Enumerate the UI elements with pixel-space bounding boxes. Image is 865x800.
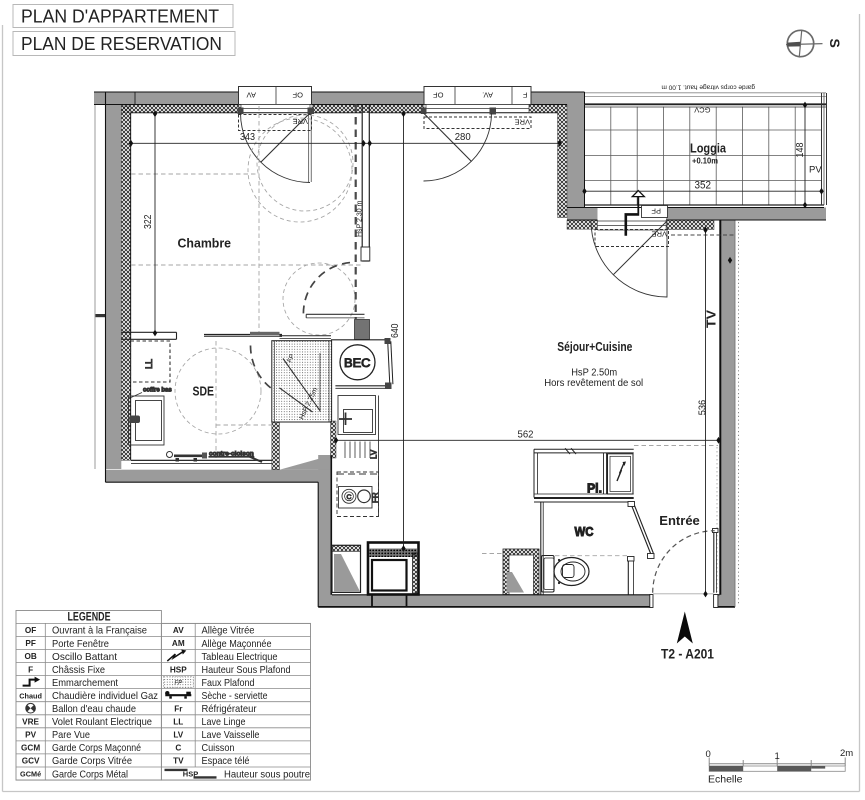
svg-text:Réfrigérateur: Réfrigérateur: [202, 704, 258, 715]
svg-text:Porte Fenêtre: Porte Fenêtre: [52, 639, 109, 650]
svg-text:AV.: AV.: [482, 91, 493, 100]
svg-text:Séjour+Cuisine: Séjour+Cuisine: [557, 339, 632, 354]
svg-text:VRE: VRE: [515, 118, 530, 127]
svg-text:coffre bas: coffre bas: [143, 388, 172, 394]
svg-text:Allège Vitrée: Allège Vitrée: [202, 626, 255, 637]
svg-text:Espace télé: Espace télé: [202, 756, 250, 767]
svg-text:Fr: Fr: [174, 704, 183, 713]
svg-text:562: 562: [518, 429, 534, 441]
svg-text:S: S: [827, 39, 843, 48]
svg-text:322: 322: [142, 214, 154, 229]
svg-text:LL: LL: [144, 359, 154, 369]
svg-text:148: 148: [794, 142, 806, 157]
svg-text:Entrée: Entrée: [659, 513, 700, 528]
svg-text:GCM: GCM: [21, 744, 40, 753]
svg-text:HsP 2.50m: HsP 2.50m: [571, 367, 617, 378]
svg-text:GCMé: GCMé: [20, 770, 41, 779]
svg-text:Pl.: Pl.: [587, 482, 602, 496]
svg-text:PV: PV: [25, 731, 36, 740]
svg-text:AM: AM: [172, 639, 185, 648]
svg-text:WC: WC: [575, 524, 595, 539]
svg-text:FP: FP: [174, 681, 182, 687]
svg-text:Tableau Electrique: Tableau Electrique: [202, 652, 278, 663]
svg-text:Hauteur sous poutre: Hauteur sous poutre: [224, 769, 310, 780]
svg-text:Ouvrant à la Française: Ouvrant à la Française: [52, 626, 147, 637]
svg-text:Ballon d'eau chaude: Ballon d'eau chaude: [52, 704, 136, 715]
svg-text:Hauteur Sous Plafond: Hauteur Sous Plafond: [202, 665, 291, 676]
svg-text:2m: 2m: [840, 748, 853, 759]
svg-text:Pare Vue: Pare Vue: [52, 730, 90, 741]
svg-text:F: F: [28, 665, 33, 674]
svg-text:Volet Roulant Electrique: Volet Roulant Electrique: [52, 717, 152, 728]
svg-text:Garde Corps Métal: Garde Corps Métal: [52, 769, 128, 780]
svg-text:SDE: SDE: [193, 384, 215, 399]
svg-text:Chambre: Chambre: [178, 236, 232, 251]
svg-text:LV: LV: [370, 449, 379, 459]
svg-text:TV: TV: [173, 757, 184, 766]
svg-text:FR: FR: [371, 492, 380, 503]
svg-text:PLAN DE RESERVATION: PLAN DE RESERVATION: [21, 34, 222, 54]
svg-text:contre-cloison: contre-cloison: [209, 451, 254, 458]
svg-text:OF: OF: [292, 91, 303, 100]
svg-text:Lave Vaisselle: Lave Vaisselle: [202, 730, 260, 741]
svg-text:536: 536: [697, 400, 709, 416]
svg-text:GCV: GCV: [694, 106, 710, 115]
svg-text:343: 343: [240, 131, 255, 143]
svg-text:TV: TV: [705, 309, 719, 328]
svg-text:HSP: HSP: [170, 665, 187, 674]
svg-text:OB: OB: [24, 652, 36, 661]
svg-text:BEC: BEC: [344, 356, 371, 370]
svg-text:Châssis Fixe: Châssis Fixe: [52, 665, 105, 676]
svg-text:Lave Linge: Lave Linge: [202, 717, 246, 728]
svg-text:280: 280: [455, 131, 471, 143]
svg-text:Garde Corps Vitrée: Garde Corps Vitrée: [52, 756, 132, 767]
svg-text:F: F: [523, 91, 528, 100]
svg-text:Garde Corps Maçonné: Garde Corps Maçonné: [52, 743, 141, 754]
svg-text:352: 352: [695, 180, 712, 192]
svg-text:OF: OF: [433, 91, 444, 100]
svg-text:Chaudière individuel Gaz: Chaudière individuel Gaz: [52, 691, 158, 702]
svg-text:T2 - A201: T2 - A201: [661, 646, 714, 661]
svg-text:PV: PV: [809, 165, 822, 176]
svg-text:Emmarchement: Emmarchement: [52, 678, 118, 689]
svg-text:Sèche - serviette: Sèche - serviette: [202, 691, 268, 702]
svg-text:Loggia: Loggia: [690, 142, 727, 156]
svg-text:PF: PF: [25, 639, 35, 648]
svg-text:C: C: [347, 494, 352, 501]
svg-text:0: 0: [706, 749, 711, 760]
svg-text:GCV: GCV: [22, 757, 40, 766]
svg-text:Chaud: Chaud: [19, 691, 42, 700]
svg-text:Echelle: Echelle: [708, 774, 743, 786]
svg-text:garde corps vitrage haut. 1.00: garde corps vitrage haut. 1.00 m: [661, 84, 755, 91]
svg-text:640: 640: [389, 323, 401, 338]
svg-text:Hors revêtement de sol: Hors revêtement de sol: [544, 378, 643, 389]
svg-text:1: 1: [775, 751, 780, 762]
svg-text:HsP 2.30 m: HsP 2.30 m: [357, 200, 364, 237]
svg-text:Faux Plafond: Faux Plafond: [202, 678, 255, 689]
svg-text:PLAN D'APPARTEMENT: PLAN D'APPARTEMENT: [21, 7, 219, 27]
svg-text:AV: AV: [247, 91, 256, 100]
svg-text:Oscillo Battant: Oscillo Battant: [52, 652, 117, 663]
svg-text:+0.10m: +0.10m: [692, 157, 718, 166]
svg-text:C: C: [175, 744, 181, 753]
svg-text:HSP: HSP: [183, 769, 198, 778]
svg-text:PF: PF: [651, 207, 661, 216]
svg-text:LV: LV: [173, 731, 183, 740]
svg-text:OF: OF: [25, 626, 36, 635]
svg-text:LEGENDE: LEGENDE: [68, 612, 111, 624]
svg-text:Cuisson: Cuisson: [202, 743, 235, 754]
svg-text:LL: LL: [173, 718, 183, 727]
svg-text:AV: AV: [173, 626, 184, 635]
svg-text:Allège Maçonnée: Allège Maçonnée: [202, 639, 272, 650]
svg-text:VRE: VRE: [22, 718, 39, 727]
